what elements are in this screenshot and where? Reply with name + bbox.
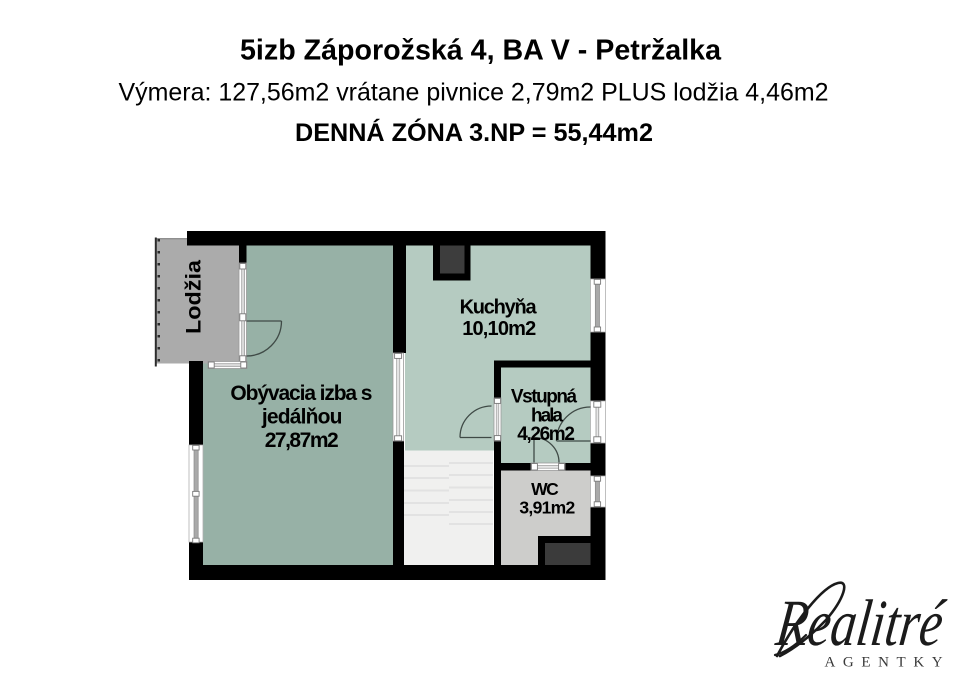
svg-text:27,87m2: 27,87m2 (265, 429, 339, 452)
svg-text:jedálňou: jedálňou (261, 406, 343, 429)
svg-text:Obývacia izba s: Obývacia izba s (230, 382, 372, 405)
svg-text:AGENTKY: AGENTKY (825, 655, 951, 671)
svg-text:WC: WC (531, 479, 559, 499)
svg-text:4,26m2: 4,26m2 (517, 424, 575, 445)
svg-text:Lodžia: Lodžia (183, 260, 206, 334)
svg-text:DENNÁ ZÓNA 3.NP = 55,44m2: DENNÁ ZÓNA 3.NP = 55,44m2 (295, 117, 653, 147)
svg-text:Kuchyňa: Kuchyňa (460, 297, 538, 319)
svg-text:5izb Záporožská 4, BA V - Petr: 5izb Záporožská 4, BA V - Petržalka (240, 35, 722, 67)
svg-text:3,91m2: 3,91m2 (519, 497, 575, 517)
svg-text:10,10m2: 10,10m2 (462, 318, 536, 340)
svg-text:Výmera: 127,56m2 vrátane pivni: Výmera: 127,56m2 vrátane pivnice 2,79m2 … (119, 79, 829, 107)
